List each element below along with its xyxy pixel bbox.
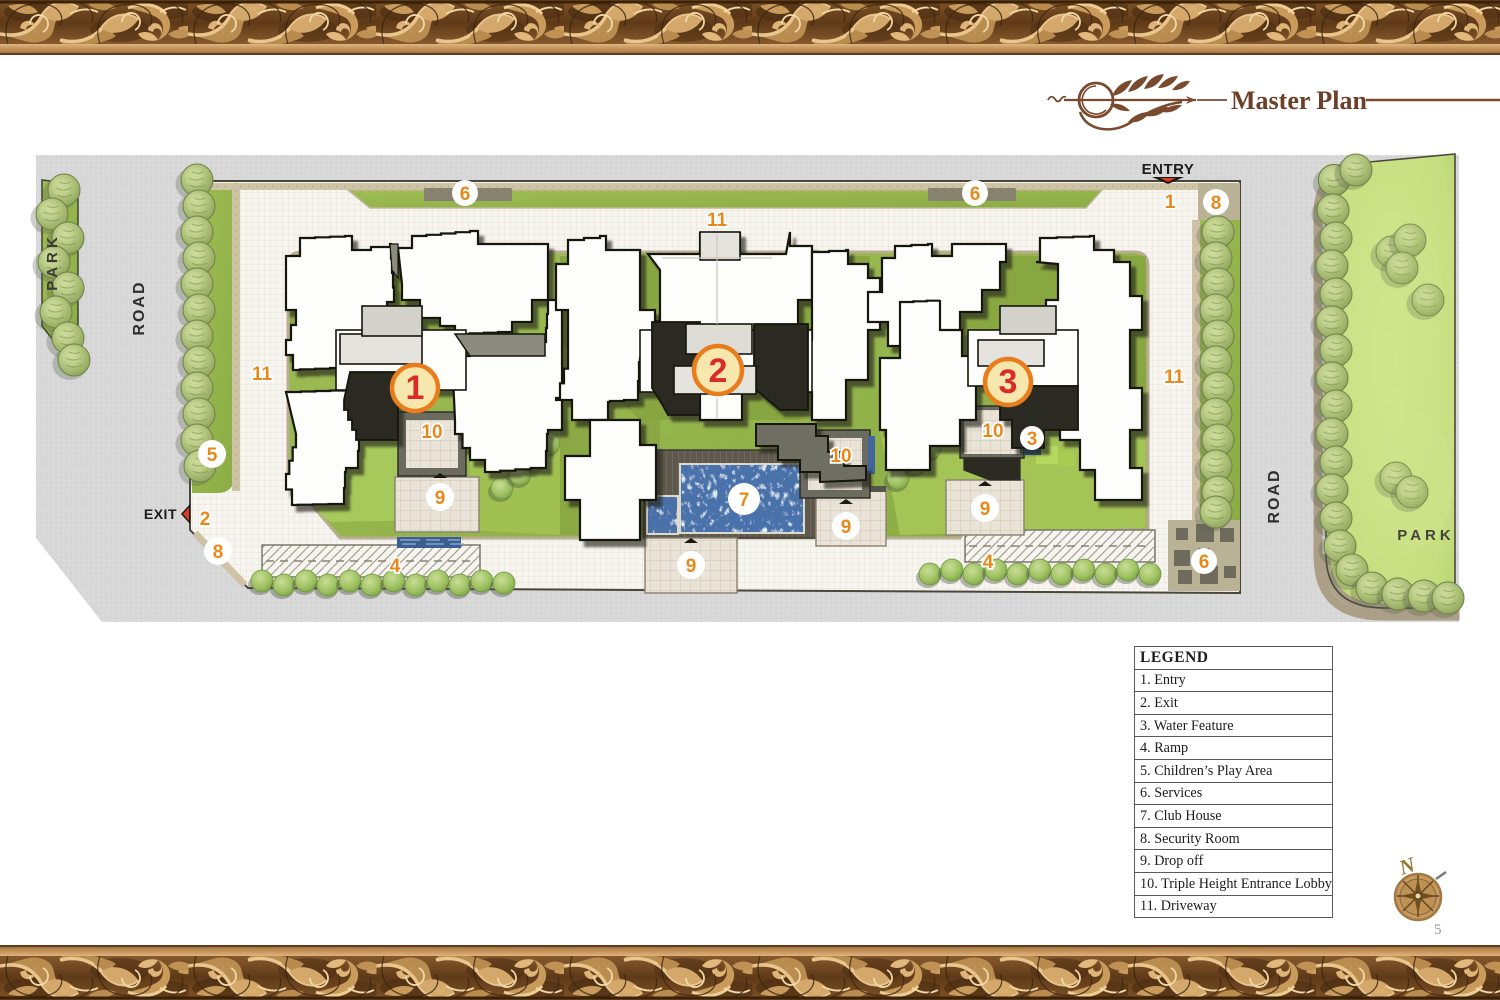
svg-text:11: 11 [1164,367,1185,388]
svg-text:ENTRY: ENTRY [1142,161,1195,178]
svg-text:1: 1 [406,369,425,407]
svg-text:5: 5 [207,445,218,466]
svg-text:10: 10 [830,446,851,467]
svg-text:10: 10 [982,421,1003,442]
svg-text:ROAD: ROAD [131,280,148,335]
svg-text:9: 9 [686,556,697,577]
svg-text:4: 4 [390,556,401,577]
svg-text:6: 6 [460,184,471,205]
svg-text:PARK: PARK [44,233,61,290]
svg-text:11: 11 [252,364,273,385]
svg-text:6: 6 [970,184,981,205]
svg-text:2: 2 [200,509,211,530]
svg-text:3: 3 [1027,429,1038,450]
svg-text:1: 1 [1165,192,1176,213]
svg-text:4: 4 [983,552,994,573]
svg-text:6: 6 [1199,552,1210,573]
svg-text:3: 3 [999,363,1018,401]
svg-text:8: 8 [1211,193,1222,214]
svg-text:9: 9 [841,517,852,538]
svg-text:N: N [1395,852,1419,880]
svg-text:10: 10 [421,422,442,443]
svg-text:7: 7 [739,490,750,511]
svg-text:8: 8 [213,542,224,563]
svg-text:Master Plan: Master Plan [1231,86,1368,115]
svg-text:9: 9 [980,499,991,520]
svg-text:2: 2 [709,352,728,390]
svg-text:11: 11 [707,210,728,231]
svg-text:PARK: PARK [1397,527,1454,544]
svg-text:EXIT: EXIT [144,506,177,522]
svg-text:ROAD: ROAD [1266,468,1283,523]
svg-text:9: 9 [435,488,446,509]
